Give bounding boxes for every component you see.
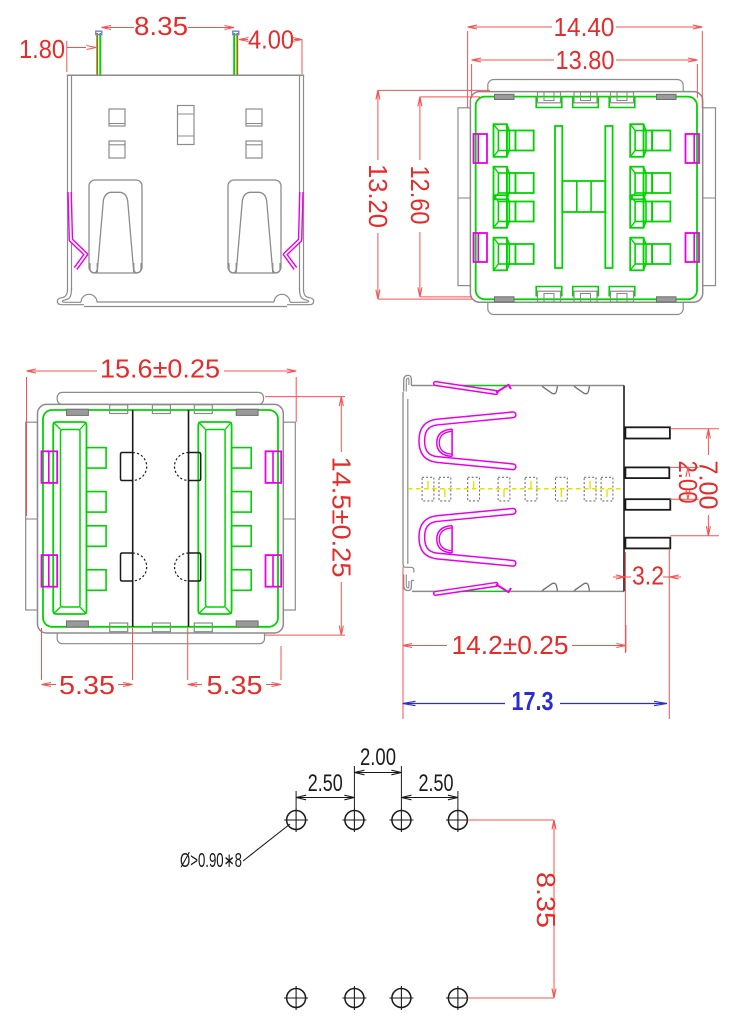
svg-text:13.80: 13.80 — [556, 45, 615, 75]
svg-text:8.35: 8.35 — [531, 872, 561, 928]
svg-text:3.2: 3.2 — [632, 561, 664, 591]
svg-text:5.35: 5.35 — [207, 670, 263, 700]
svg-text:2.00: 2.00 — [360, 744, 396, 771]
svg-text:2.50: 2.50 — [419, 770, 454, 797]
svg-text:14.5±0.25: 14.5±0.25 — [326, 457, 356, 578]
svg-text:1.80: 1.80 — [19, 34, 65, 64]
svg-text:14.2±0.25: 14.2±0.25 — [452, 630, 569, 660]
svg-text:13.20: 13.20 — [363, 164, 393, 228]
svg-text:2.50: 2.50 — [308, 770, 343, 797]
svg-text:17.3: 17.3 — [512, 686, 554, 716]
svg-text:15.6±0.25: 15.6±0.25 — [100, 354, 220, 384]
svg-text:8.35: 8.35 — [134, 11, 188, 41]
svg-text:5.35: 5.35 — [59, 670, 115, 700]
svg-text:14.40: 14.40 — [554, 12, 615, 42]
svg-text:12.60: 12.60 — [405, 166, 435, 225]
svg-text:4.00: 4.00 — [248, 25, 294, 55]
svg-text:Ø>0.90∗8: Ø>0.90∗8 — [180, 850, 242, 872]
